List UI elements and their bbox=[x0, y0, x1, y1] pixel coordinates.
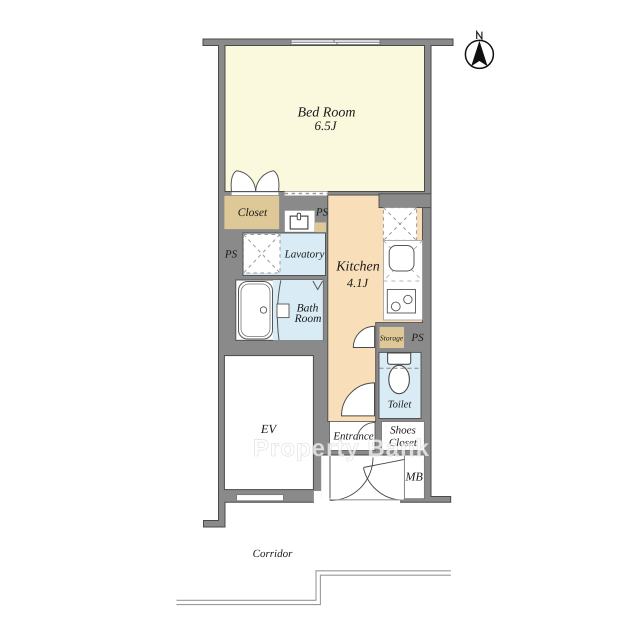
svg-text:Lavatory: Lavatory bbox=[284, 249, 325, 261]
svg-text:Kitchen: Kitchen bbox=[335, 260, 380, 275]
svg-text:Storage: Storage bbox=[380, 334, 404, 343]
svg-text:PS: PS bbox=[410, 332, 424, 344]
svg-text:EV: EV bbox=[260, 422, 278, 436]
svg-text:PS: PS bbox=[224, 249, 238, 261]
svg-text:6.5J: 6.5J bbox=[314, 118, 337, 133]
svg-text:Closet: Closet bbox=[238, 207, 268, 219]
svg-text:4.1J: 4.1J bbox=[347, 276, 370, 290]
svg-text:Toilet: Toilet bbox=[388, 400, 413, 411]
svg-text:MB: MB bbox=[405, 470, 424, 484]
svg-text:Room: Room bbox=[294, 313, 322, 325]
svg-text:Property Bank: Property Bank bbox=[253, 435, 430, 462]
svg-text:PS: PS bbox=[315, 207, 329, 219]
svg-text:Corridor: Corridor bbox=[253, 548, 293, 560]
